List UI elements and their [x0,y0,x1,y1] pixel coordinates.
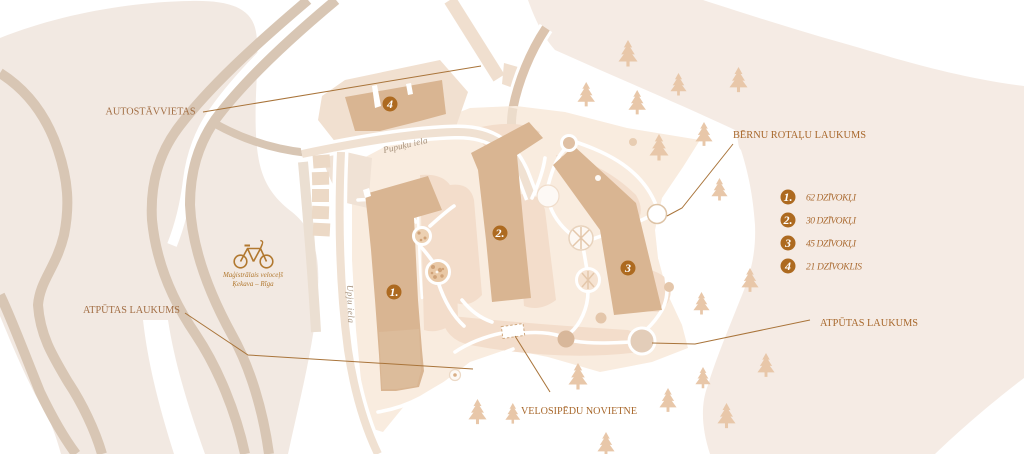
svg-text:1.: 1. [784,190,793,204]
svg-text:1.: 1. [390,285,399,299]
svg-text:2.: 2. [495,226,505,240]
svg-text:Upju iela: Upju iela [345,285,356,324]
svg-text:4: 4 [386,97,393,111]
svg-text:21 DZĪVOKLIS: 21 DZĪVOKLIS [806,261,862,273]
svg-text:BĒRNU ROTAĻU LAUKUMS: BĒRNU ROTAĻU LAUKUMS [733,129,866,141]
svg-text:3: 3 [624,261,631,275]
svg-text:AUTOSTĀVVIETAS: AUTOSTĀVVIETAS [106,106,196,118]
svg-text:VELOSIPĒDU NOVIETNE: VELOSIPĒDU NOVIETNE [521,405,637,417]
svg-text:3: 3 [784,236,791,250]
svg-text:45 DZĪVOKĻI: 45 DZĪVOKĻI [806,238,857,250]
svg-text:2.: 2. [783,213,793,227]
svg-text:Maģistrālais veloceļš: Maģistrālais veloceļš [222,271,283,279]
svg-text:4: 4 [784,259,791,273]
svg-text:Ķekava – Rīga: Ķekava – Rīga [231,280,274,288]
svg-text:ATPŪTAS LAUKUMS: ATPŪTAS LAUKUMS [820,317,918,329]
svg-text:30 DZĪVOKĻI: 30 DZĪVOKĻI [805,215,857,227]
svg-text:ATPŪTAS LAUKUMS: ATPŪTAS LAUKUMS [83,304,180,316]
svg-text:62 DZĪVOKĻI: 62 DZĪVOKĻI [806,192,857,204]
